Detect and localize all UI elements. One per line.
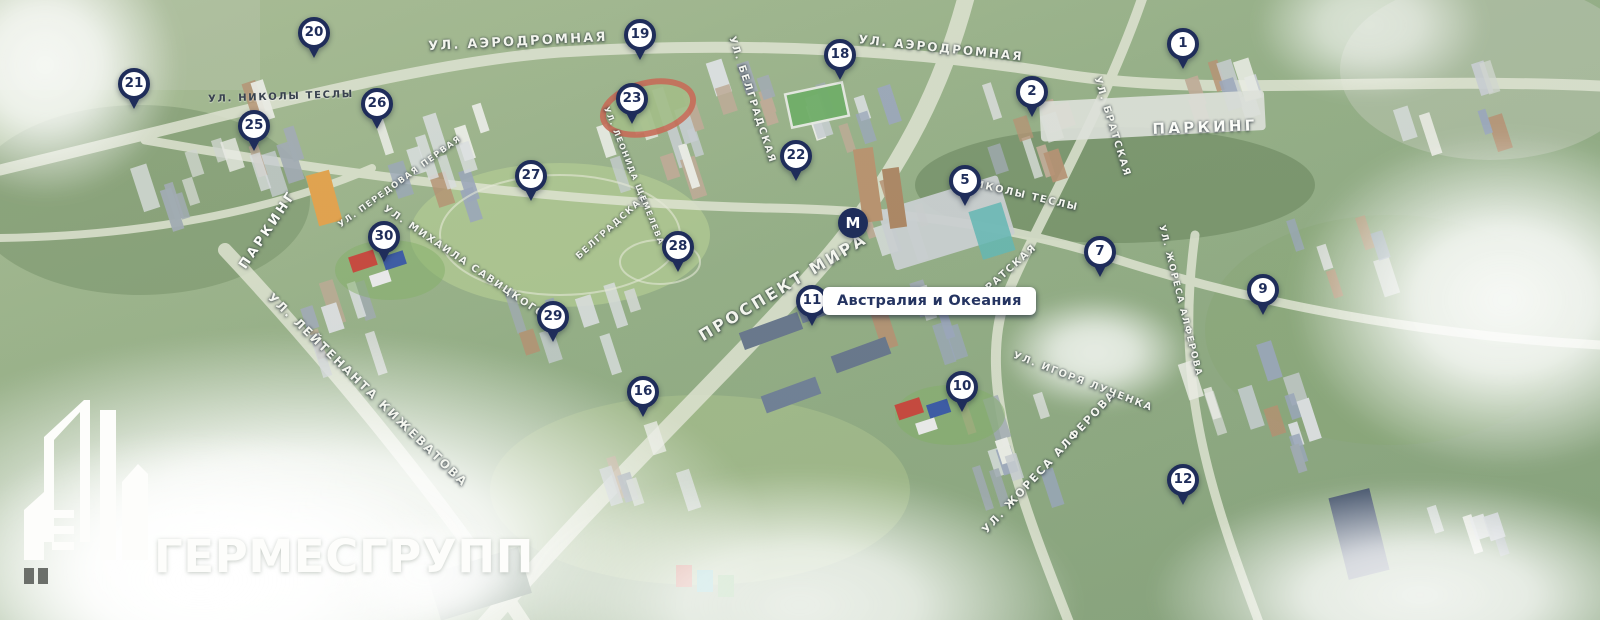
map-pin-2[interactable]: 2 xyxy=(1016,76,1048,122)
map-pin-10[interactable]: 10 xyxy=(946,371,978,417)
metro-icon: М xyxy=(838,208,868,238)
pin-number: 23 xyxy=(616,83,648,115)
map-pin-5[interactable]: 5 xyxy=(949,165,981,211)
map-pin-25[interactable]: 25 xyxy=(238,110,270,156)
developer-logo-icon xyxy=(22,382,152,587)
pin-number: 30 xyxy=(368,221,400,253)
map-pin-16[interactable]: 16 xyxy=(627,376,659,422)
map-pin-1[interactable]: 1 xyxy=(1167,28,1199,74)
masterplan-map: УЛ. АЭРОДРОМНАЯУЛ. АЭРОДРОМНАЯУЛ. НИКОЛЫ… xyxy=(0,0,1600,620)
map-pin-29[interactable]: 29 xyxy=(537,301,569,347)
map-pin-30[interactable]: 30 xyxy=(368,221,400,267)
pin-number: 2 xyxy=(1016,76,1048,108)
pin-number: 18 xyxy=(824,39,856,71)
map-pin-19[interactable]: 19 xyxy=(624,19,656,65)
pin-number: 16 xyxy=(627,376,659,408)
developer-logo: ГЕРМЕСГРУПП xyxy=(22,382,152,591)
map-pin-20[interactable]: 20 xyxy=(298,17,330,63)
pin-number: 7 xyxy=(1084,236,1116,268)
pin-number: 29 xyxy=(537,301,569,333)
map-pin-27[interactable]: 27 xyxy=(515,160,547,206)
markers-layer: 125791011Австралия и Океания121618192021… xyxy=(0,0,1600,620)
pin-number: 28 xyxy=(662,231,694,263)
map-pin-7[interactable]: 7 xyxy=(1084,236,1116,282)
map-pin-18[interactable]: 18 xyxy=(824,39,856,85)
pin-number: 25 xyxy=(238,110,270,142)
map-pin-12[interactable]: 12 xyxy=(1167,464,1199,510)
pin-number: 20 xyxy=(298,17,330,49)
map-pin-11[interactable]: 11Австралия и Океания xyxy=(796,285,828,331)
pin-number: 5 xyxy=(949,165,981,197)
map-pin-22[interactable]: 22 xyxy=(780,140,812,186)
quarter-tooltip[interactable]: Австралия и Океания xyxy=(823,287,1036,315)
pin-number: 21 xyxy=(118,68,150,100)
pin-number: 26 xyxy=(361,88,393,120)
pin-number: 12 xyxy=(1167,464,1199,496)
map-pin-9[interactable]: 9 xyxy=(1247,274,1279,320)
pin-number: 10 xyxy=(946,371,978,403)
map-pin-26[interactable]: 26 xyxy=(361,88,393,134)
pin-number: 19 xyxy=(624,19,656,51)
pin-number: 9 xyxy=(1247,274,1279,306)
pin-number: 27 xyxy=(515,160,547,192)
map-pin-23[interactable]: 23 xyxy=(616,83,648,129)
pin-number: 1 xyxy=(1167,28,1199,60)
map-pin-28[interactable]: 28 xyxy=(662,231,694,277)
map-pin-21[interactable]: 21 xyxy=(118,68,150,114)
developer-logo-text: ГЕРМЕСГРУПП xyxy=(154,530,534,583)
pin-number: 22 xyxy=(780,140,812,172)
